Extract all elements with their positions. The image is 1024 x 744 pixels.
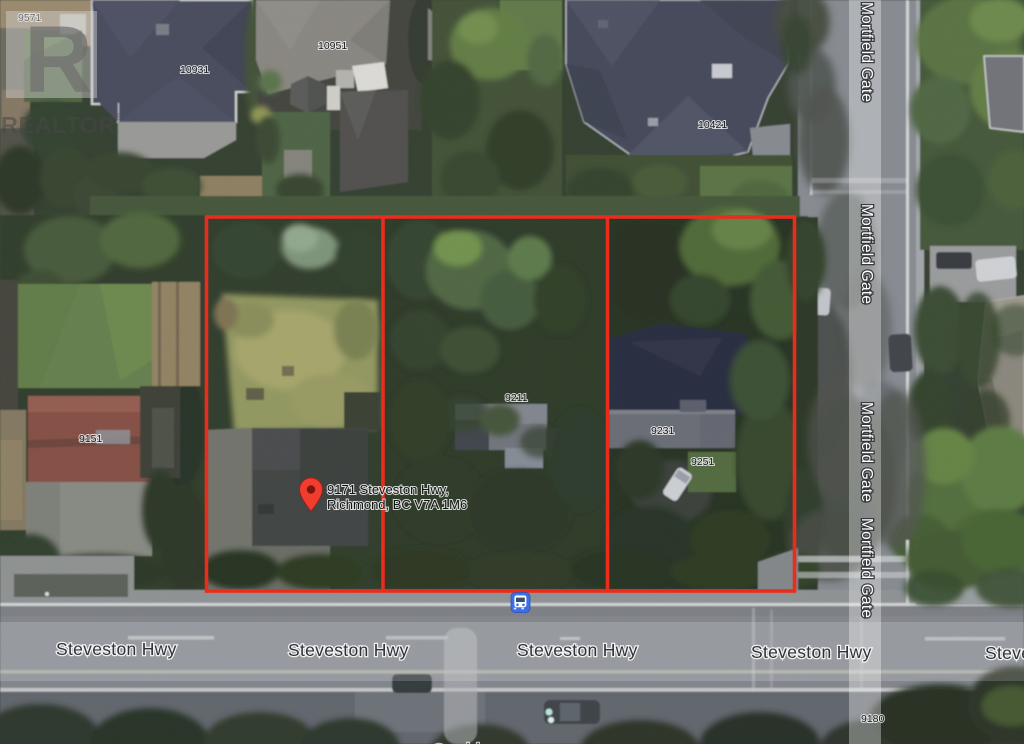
svg-text:9231: 9231: [651, 425, 675, 437]
svg-text:9211: 9211: [505, 392, 528, 404]
svg-text:Richmond, BC V7A 1M6: Richmond, BC V7A 1M6: [327, 497, 467, 512]
svg-text:9251: 9251: [691, 456, 715, 468]
svg-text:Gould: Gould: [432, 740, 480, 744]
svg-text:9171 Steveston Hwy,: 9171 Steveston Hwy,: [327, 482, 449, 497]
svg-text:Steveston Hwy: Steveston Hwy: [56, 639, 177, 659]
svg-text:10951: 10951: [318, 40, 347, 52]
svg-text:Mortfield Gate: Mortfield Gate: [858, 518, 875, 618]
svg-text:Steveston Hwy: Steveston Hwy: [751, 642, 872, 662]
svg-text:Steveston Hwy: Steveston Hwy: [985, 643, 1024, 663]
svg-text:Mortfield Gate: Mortfield Gate: [858, 204, 875, 304]
svg-text:Steveston Hwy: Steveston Hwy: [517, 640, 638, 660]
svg-text:®: ®: [115, 112, 123, 123]
svg-text:Mortfield Gate: Mortfield Gate: [858, 402, 875, 502]
svg-text:Mortfield Gate: Mortfield Gate: [858, 2, 875, 102]
svg-text:REALTOR: REALTOR: [1, 112, 116, 138]
svg-text:9180: 9180: [861, 713, 885, 725]
svg-text:10931: 10931: [180, 64, 209, 76]
svg-text:R: R: [24, 7, 93, 113]
svg-text:10421: 10421: [698, 119, 727, 131]
svg-text:Steveston Hwy: Steveston Hwy: [288, 640, 409, 660]
svg-text:9151: 9151: [79, 433, 103, 445]
